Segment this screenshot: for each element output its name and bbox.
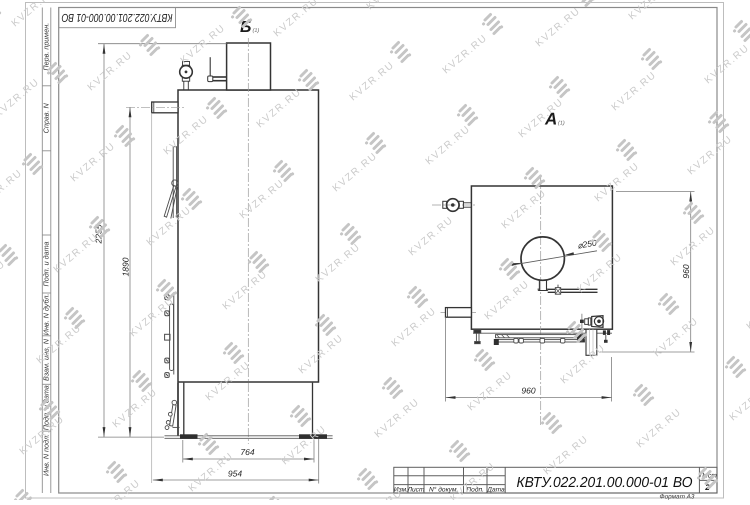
svg-text:Формат А3: Формат А3 [660, 494, 695, 500]
svg-text:Инв. N дубл.: Инв. N дубл. [42, 294, 51, 336]
svg-text:Дата: Дата [486, 487, 505, 494]
svg-text:(1): (1) [253, 28, 260, 34]
svg-text:Подп. и дата: Подп. и дата [42, 242, 51, 287]
svg-text:КВТУ.022.201.00.000-01 ВО: КВТУ.022.201.00.000-01 ВО [517, 475, 693, 491]
svg-text:Справ. N: Справ. N [42, 102, 51, 133]
svg-text:954: 954 [228, 469, 242, 479]
svg-text:Лист: Лист [407, 487, 425, 494]
svg-text:Перв. примен.: Перв. примен. [42, 23, 51, 71]
svg-text:960: 960 [521, 386, 535, 396]
svg-text:960: 960 [681, 264, 691, 278]
svg-text:1890: 1890 [121, 257, 131, 276]
svg-text:(1): (1) [558, 121, 565, 127]
svg-text:764: 764 [240, 447, 254, 457]
svg-text:КВТУ.022.201.00.000-01 ВО: КВТУ.022.201.00.000-01 ВО [62, 11, 173, 23]
